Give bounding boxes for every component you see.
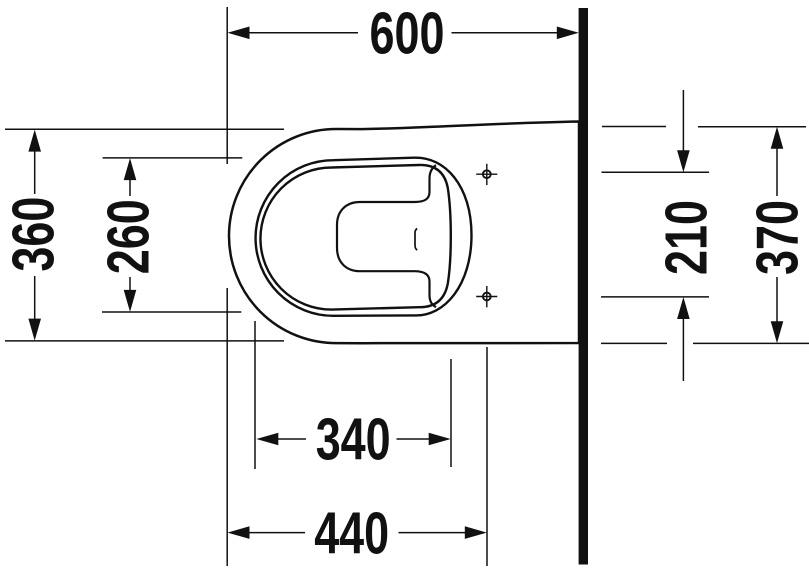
svg-text:340: 340 <box>316 407 391 473</box>
svg-text:370: 370 <box>744 200 809 275</box>
svg-text:210: 210 <box>653 200 719 275</box>
svg-text:360: 360 <box>0 197 66 272</box>
svg-text:440: 440 <box>314 500 389 566</box>
svg-text:600: 600 <box>370 1 445 67</box>
svg-text:260: 260 <box>95 199 161 274</box>
